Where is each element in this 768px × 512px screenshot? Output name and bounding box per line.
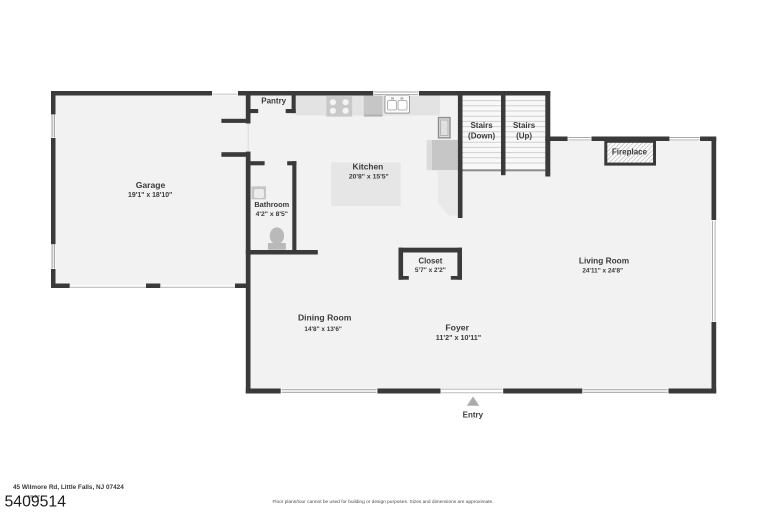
svg-text:Bathroom: Bathroom <box>254 200 289 209</box>
svg-text:Pantry: Pantry <box>261 96 286 105</box>
svg-text:19'1" x 18'10": 19'1" x 18'10" <box>128 192 172 199</box>
svg-text:Closet: Closet <box>418 256 442 265</box>
svg-text:Stairs: Stairs <box>513 121 536 130</box>
svg-text:Foyer: Foyer <box>445 322 469 332</box>
svg-text:45 Wilmore Rd, Little Falls, N: 45 Wilmore Rd, Little Falls, NJ 07424 <box>13 484 124 491</box>
svg-text:Floor plans/tour cannot be use: Floor plans/tour cannot be used for buil… <box>272 499 493 505</box>
svg-text:Kitchen: Kitchen <box>353 162 384 172</box>
svg-text:11'2" x 10'11": 11'2" x 10'11" <box>436 333 481 342</box>
svg-text:(Up): (Up) <box>516 131 532 140</box>
svg-text:20'8" x 15'5": 20'8" x 15'5" <box>349 173 389 180</box>
svg-text:14'8" x 13'6": 14'8" x 13'6" <box>304 326 342 333</box>
svg-text:Fireplace: Fireplace <box>612 147 648 156</box>
svg-text:Stairs: Stairs <box>470 121 493 130</box>
svg-text:Living Room: Living Room <box>579 256 629 266</box>
svg-text:24'11" x 24'8": 24'11" x 24'8" <box>582 267 623 274</box>
svg-text:Garage: Garage <box>136 180 166 190</box>
svg-text:4'2" x 8'5": 4'2" x 8'5" <box>256 211 288 218</box>
svg-text:Dining Room: Dining Room <box>298 312 352 322</box>
svg-text:(Down): (Down) <box>468 131 495 140</box>
svg-text:5409514: 5409514 <box>5 494 67 511</box>
svg-text:Entry: Entry <box>463 411 484 420</box>
svg-text:5'7" x 2'2": 5'7" x 2'2" <box>415 267 446 274</box>
